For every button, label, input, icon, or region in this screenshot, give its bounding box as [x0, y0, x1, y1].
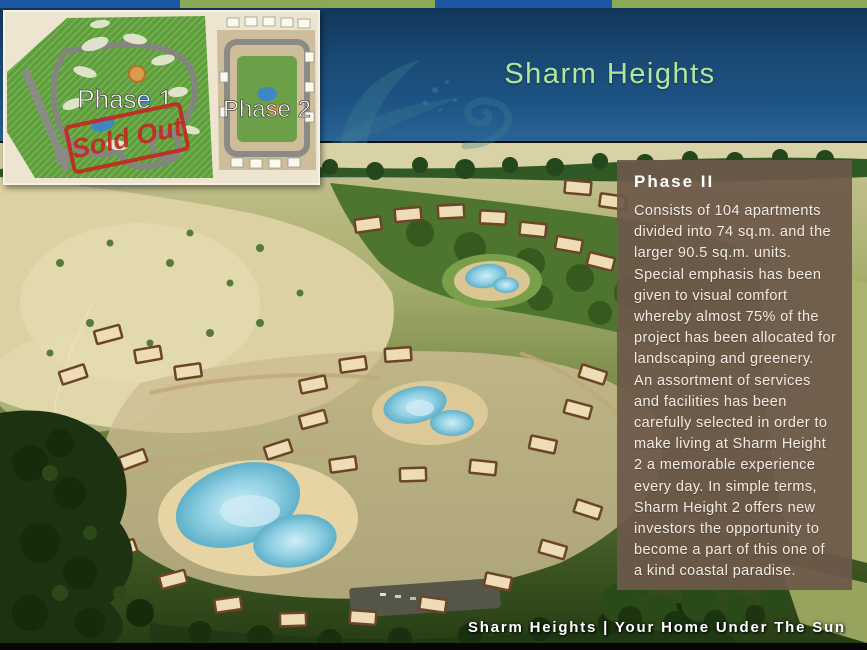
swimming-pool-upper: [442, 254, 542, 308]
strip-segment-blue: [0, 0, 180, 8]
footer-tagline: Sharm Heights | Your Home Under The Sun: [468, 619, 846, 636]
strip-segment-green: [612, 0, 867, 8]
swimming-pool-middle: [372, 381, 488, 445]
bottom-bar: [0, 643, 867, 650]
top-accent-strip: [0, 0, 867, 8]
slide-title: Sharm Heights: [430, 58, 790, 91]
site-map-inset: Phase 1 Phase 2 Sold Out: [3, 10, 320, 185]
strip-segment-blue: [435, 0, 612, 8]
info-heading: Phase II: [634, 172, 837, 192]
info-paragraph-1: Consists of 104 apartments divided into …: [634, 201, 837, 371]
info-paragraph-2: An assortment of services and facilities…: [634, 371, 837, 583]
strip-segment-green: [180, 0, 435, 8]
phase2-info-panel: Phase II Consists of 104 apartments divi…: [617, 160, 852, 590]
presentation-slide: Sharm Heights: [0, 0, 867, 650]
phase2-area: [217, 17, 316, 170]
phase2-label: Phase 2: [223, 96, 311, 123]
